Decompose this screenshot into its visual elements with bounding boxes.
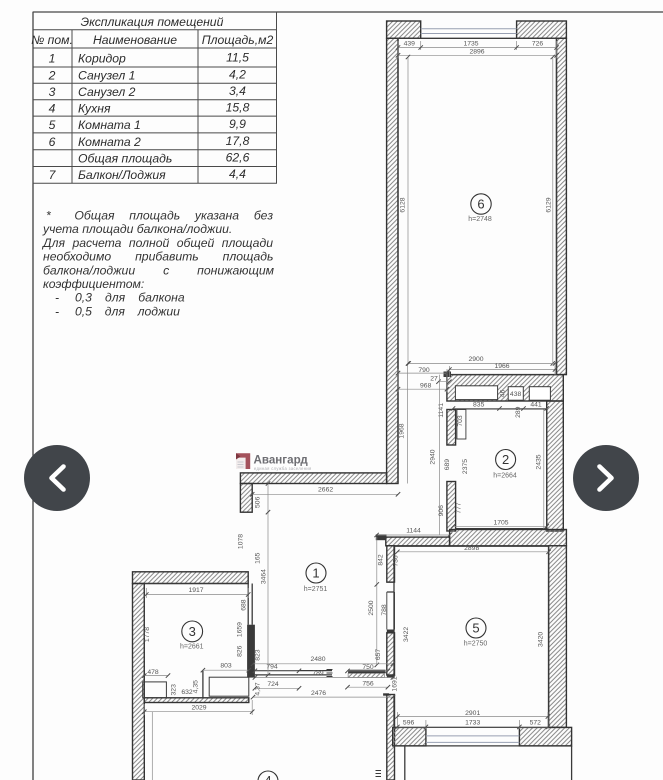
svg-text:572: 572 (530, 720, 542, 727)
svg-text:*: * (46, 209, 52, 223)
svg-text:1: 1 (49, 52, 56, 66)
svg-text:15,8: 15,8 (226, 101, 250, 115)
svg-text:803: 803 (220, 663, 232, 670)
svg-text:Балкон/Лоджия: Балкон/Лоджия (78, 168, 166, 182)
svg-text:703: 703 (457, 415, 464, 427)
svg-text:1966: 1966 (494, 363, 509, 370)
svg-text:788: 788 (381, 604, 388, 616)
svg-text:2898: 2898 (464, 545, 479, 552)
svg-text:46: 46 (499, 389, 506, 397)
svg-text:2375: 2375 (462, 459, 469, 474)
svg-text:1144: 1144 (406, 528, 421, 535)
svg-text:823: 823 (254, 649, 261, 661)
svg-text:4: 4 (49, 102, 56, 116)
svg-text:826: 826 (237, 645, 244, 657)
svg-text:Санузел 1: Санузел 1 (78, 69, 135, 83)
svg-text:Кухня: Кухня (78, 102, 111, 116)
svg-text:6129: 6129 (546, 197, 553, 212)
svg-text:688: 688 (241, 599, 248, 611)
svg-text:-: - (55, 291, 59, 305)
svg-text:2435: 2435 (535, 454, 542, 469)
svg-text:2901: 2901 (465, 710, 480, 717)
svg-text:17,8: 17,8 (226, 134, 250, 148)
svg-text:1141: 1141 (438, 403, 445, 418)
svg-text:4: 4 (264, 773, 271, 780)
svg-text:165: 165 (254, 552, 261, 564)
svg-text:506: 506 (254, 496, 261, 508)
svg-text:4,4: 4,4 (229, 167, 246, 181)
svg-text:3422: 3422 (403, 627, 410, 642)
svg-text:Авангард: Авангард (254, 454, 309, 467)
svg-text:h=2750: h=2750 (464, 641, 488, 648)
svg-text:Общая площадь указана без: Общая площадь указана без (74, 209, 273, 223)
svg-text:689: 689 (444, 459, 451, 471)
svg-text:-: - (55, 304, 59, 318)
svg-text:3,4: 3,4 (229, 84, 246, 98)
svg-text:№ пом.: № пом. (31, 33, 73, 47)
svg-text:Комната 2: Комната 2 (78, 135, 141, 149)
svg-text:4,35: 4,35 (193, 680, 200, 693)
svg-text:906: 906 (438, 505, 445, 517)
svg-text:коэффициентом:: коэффициентом: (43, 277, 144, 291)
svg-text:4,37: 4,37 (255, 682, 262, 695)
svg-text:27: 27 (430, 375, 438, 382)
svg-text:11,5: 11,5 (226, 51, 249, 65)
svg-text:790: 790 (418, 367, 430, 374)
svg-text:3: 3 (189, 624, 196, 639)
svg-text:842: 842 (377, 554, 384, 566)
svg-text:6: 6 (477, 197, 484, 212)
svg-text:794: 794 (266, 664, 278, 671)
svg-text:1735: 1735 (463, 41, 478, 48)
svg-text:2029: 2029 (191, 705, 206, 712)
svg-text:439: 439 (404, 41, 416, 48)
svg-text:3464: 3464 (261, 569, 268, 584)
svg-text:балкона/лоджии с понижающим: балкона/лоджии с понижающим (43, 263, 275, 277)
svg-text:h=2664: h=2664 (493, 473, 517, 480)
svg-text:h=2661: h=2661 (180, 644, 204, 651)
svg-text:5: 5 (472, 621, 479, 636)
svg-text:596: 596 (403, 720, 415, 727)
svg-text:Комната 1: Комната 1 (78, 118, 141, 132)
svg-text:Общая площадь: Общая площадь (78, 152, 172, 166)
svg-text:0,5 для лоджии: 0,5 для лоджии (75, 304, 180, 318)
svg-text:736: 736 (393, 555, 400, 567)
svg-text:323: 323 (171, 684, 178, 696)
svg-text:единая служба заселения: единая служба заселения (254, 466, 312, 471)
svg-text:2500: 2500 (368, 600, 375, 615)
svg-text:учета площади балкона/лоджии.: учета площади балкона/лоджии. (42, 222, 232, 236)
svg-text:1968: 1968 (399, 423, 406, 438)
svg-text:1691: 1691 (392, 676, 399, 691)
svg-text:289: 289 (515, 406, 522, 418)
svg-text:h=2748: h=2748 (468, 216, 492, 223)
svg-text:0,3 для балкона: 0,3 для балкона (75, 291, 185, 305)
svg-text:1078: 1078 (238, 534, 245, 549)
svg-text:3: 3 (49, 85, 56, 99)
svg-text:2480: 2480 (310, 656, 325, 663)
svg-text:968: 968 (420, 383, 432, 390)
svg-text:62,6: 62,6 (226, 151, 250, 165)
svg-text:необходимо прибавить площадь: необходимо прибавить площадь (43, 250, 273, 264)
svg-text:Санузел 2: Санузел 2 (78, 85, 136, 99)
svg-text:5: 5 (49, 118, 56, 132)
svg-text:777: 777 (455, 502, 462, 514)
svg-text:9,9: 9,9 (229, 117, 246, 131)
svg-text:2: 2 (502, 452, 509, 467)
svg-text:724: 724 (267, 681, 279, 688)
svg-text:2896: 2896 (469, 48, 484, 55)
svg-text:4,2: 4,2 (229, 68, 246, 82)
svg-text:Наименование: Наименование (93, 33, 177, 47)
svg-text:1917: 1917 (188, 587, 203, 594)
svg-text:6128: 6128 (400, 197, 407, 212)
svg-text:478: 478 (147, 669, 159, 676)
svg-text:Экспликация помещений: Экспликация помещений (81, 15, 224, 29)
svg-text:h=2751: h=2751 (304, 586, 328, 593)
svg-text:438: 438 (510, 391, 522, 398)
svg-text:3420: 3420 (537, 632, 544, 647)
svg-text:835: 835 (473, 402, 485, 409)
svg-text:1705: 1705 (493, 520, 508, 527)
svg-text:6: 6 (49, 135, 56, 149)
svg-text:1733: 1733 (465, 720, 480, 727)
svg-text:2476: 2476 (311, 690, 326, 697)
svg-text:750: 750 (362, 664, 374, 671)
svg-text:7: 7 (49, 168, 57, 182)
svg-text:1778: 1778 (144, 627, 151, 642)
svg-text:Коридор: Коридор (78, 52, 126, 66)
svg-text:756: 756 (362, 680, 374, 687)
svg-text:1: 1 (312, 566, 319, 581)
svg-text:789: 789 (312, 670, 324, 677)
svg-text:1659: 1659 (237, 622, 244, 637)
svg-text:2: 2 (48, 69, 56, 83)
svg-text:Для расчета полной общей площа: Для расчета полной общей площади (41, 236, 273, 250)
svg-text:632: 632 (181, 689, 193, 696)
svg-text:2940: 2940 (429, 449, 436, 464)
svg-text:2662: 2662 (318, 487, 333, 494)
svg-text:2900: 2900 (468, 356, 483, 363)
svg-text:726: 726 (532, 41, 544, 48)
svg-text:441: 441 (530, 402, 542, 409)
svg-text:657: 657 (375, 649, 382, 661)
svg-text:Площадь,м2: Площадь,м2 (202, 33, 274, 47)
